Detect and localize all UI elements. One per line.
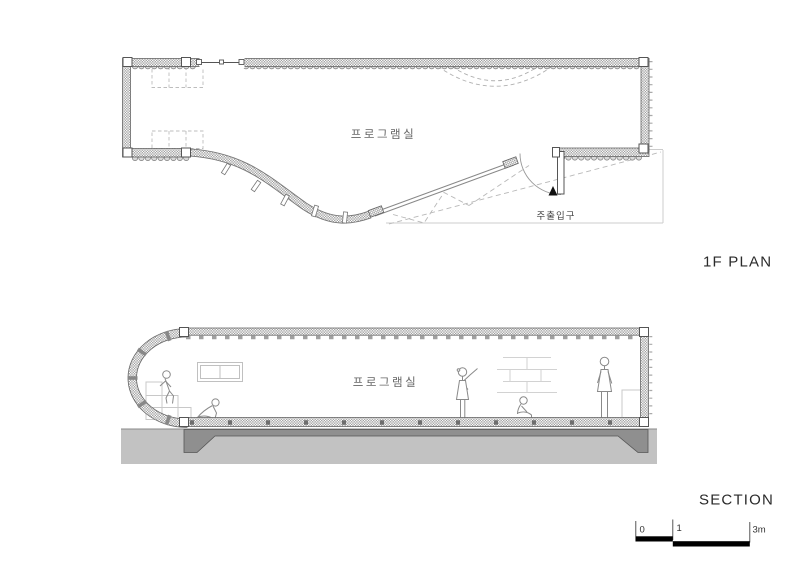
section-window <box>198 363 243 382</box>
floor-plan: 프로그램실 주출입구 <box>123 57 664 224</box>
section-right-wall <box>641 332 649 420</box>
entrance-arrow-icon <box>549 186 558 196</box>
plan-entrance-deck <box>386 150 663 224</box>
scale-bar-segment-2 <box>673 541 750 546</box>
plan-left-wall <box>123 59 131 158</box>
plan-entrance-door <box>520 152 564 195</box>
plan-right-wall <box>641 59 649 152</box>
architectural-sheet: 프로그램실 주출입구 <box>0 0 800 565</box>
plan-dashed-guides <box>389 152 661 224</box>
plan-title: 1F PLAN <box>703 254 772 271</box>
plan-posts <box>123 58 648 158</box>
plan-dashed-furniture <box>152 67 203 149</box>
scale-bar: 0 1 3m <box>636 520 766 547</box>
plan-bottom-right-wall <box>557 148 650 157</box>
figure-crawling-child <box>194 399 219 419</box>
scale-bar-segment-1 <box>636 536 673 541</box>
scale-tick-3m: 3m <box>753 525 766 536</box>
section-brick-wall <box>497 358 557 393</box>
plan-top-window <box>197 57 245 68</box>
plan-entrance-label: 주출입구 <box>537 210 576 222</box>
plan-room-label: 프로그램실 <box>351 128 416 141</box>
scale-tick-1: 1 <box>677 523 682 534</box>
section-title: SECTION <box>699 492 774 509</box>
section-roof <box>183 328 649 335</box>
section-floor <box>183 418 645 427</box>
plan-walls <box>123 59 650 158</box>
door-leaf <box>558 152 565 195</box>
section-drawing: 프로그램실 <box>121 328 657 465</box>
section-room-label: 프로그램실 <box>353 376 418 389</box>
plan-glass-ramp-wall <box>368 157 518 217</box>
plan-wall-bumps <box>135 66 639 158</box>
architectural-drawing: 프로그램실 주출입구 <box>0 0 800 565</box>
plan-curved-wall <box>190 153 370 220</box>
door-swing-arc <box>520 154 561 195</box>
plan-dashed-arcs <box>438 67 552 87</box>
scale-tick-0: 0 <box>640 525 645 536</box>
figure-sitting-child <box>517 397 532 419</box>
plan-bottom-left-wall <box>128 149 190 158</box>
figure-standing-adult <box>598 357 612 419</box>
section-cabinet <box>622 390 643 418</box>
figure-adult-raised-arm <box>457 368 478 419</box>
